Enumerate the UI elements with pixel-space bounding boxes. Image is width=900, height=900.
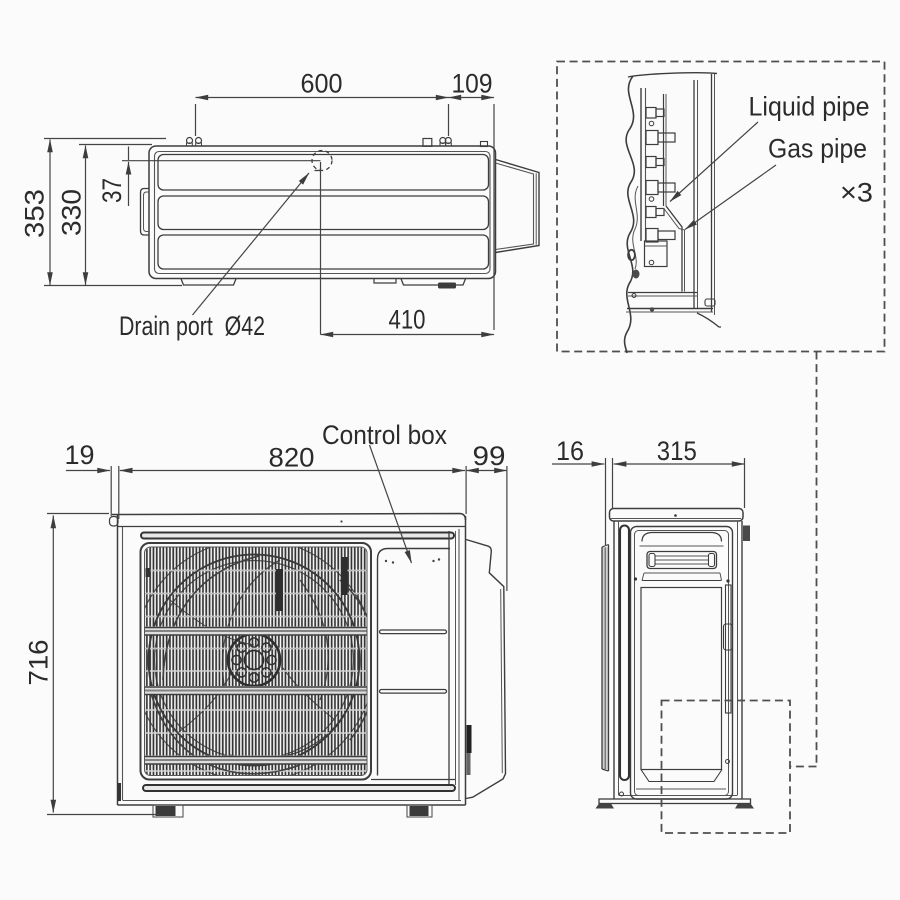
- svg-text:99: 99: [473, 441, 506, 471]
- svg-text:315: 315: [657, 436, 697, 466]
- svg-text:600: 600: [301, 69, 343, 99]
- svg-text:Gas pipe: Gas pipe: [768, 134, 867, 164]
- svg-text:820: 820: [269, 443, 315, 473]
- svg-text:330: 330: [57, 189, 87, 236]
- svg-text:37: 37: [97, 178, 127, 203]
- svg-text:109: 109: [452, 69, 493, 99]
- svg-text:Liquid pipe: Liquid pipe: [749, 92, 870, 122]
- svg-text:16: 16: [556, 436, 584, 466]
- svg-text:Drain port Ø42: Drain port Ø42: [119, 311, 265, 341]
- svg-text:19: 19: [65, 440, 95, 470]
- svg-text:353: 353: [20, 189, 50, 238]
- svg-text:410: 410: [389, 305, 426, 335]
- svg-text:716: 716: [24, 640, 54, 686]
- svg-text:Control box: Control box: [322, 420, 447, 450]
- svg-text:×3: ×3: [840, 178, 873, 208]
